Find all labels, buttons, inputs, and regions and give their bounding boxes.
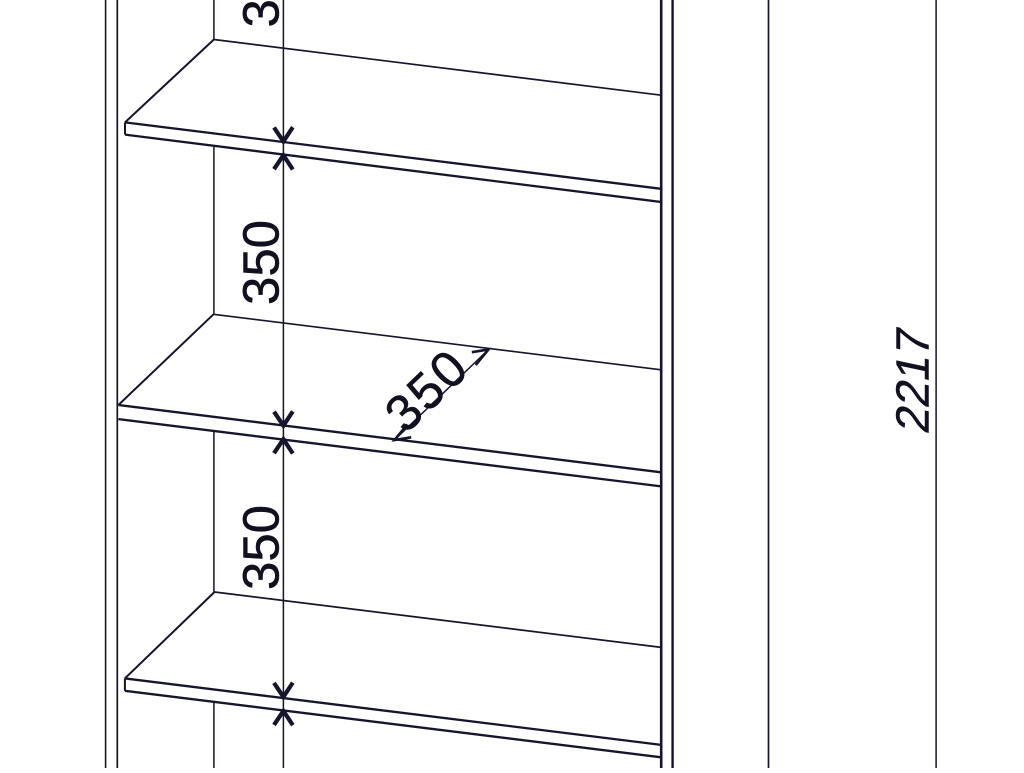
svg-text:2217: 2217 (886, 323, 938, 438)
svg-text:350: 350 (233, 505, 290, 590)
svg-text:350: 350 (233, 0, 290, 28)
svg-text:350: 350 (233, 220, 290, 305)
